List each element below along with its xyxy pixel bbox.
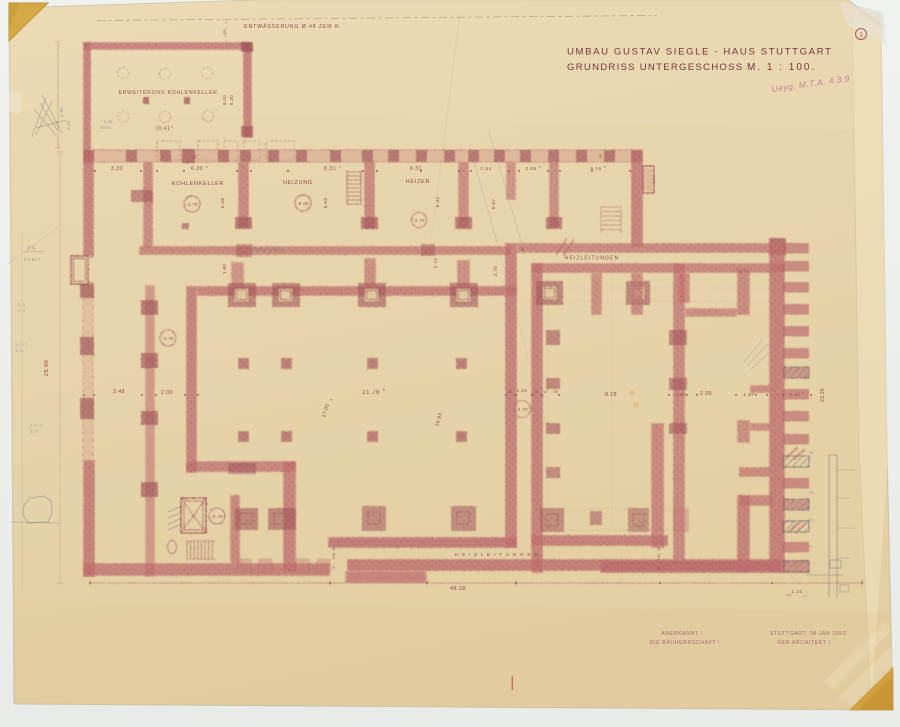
svg-text:UMBAU GUSTAV SIEGLE - HAUS: UMBAU GUSTAV SIEGLE - HAUS STUTTGART <box>567 47 833 58</box>
svg-text:1.00: 1.00 <box>657 554 661 560</box>
svg-text:29.80: 29.80 <box>44 360 50 377</box>
svg-text:2.54: 2.54 <box>480 166 491 172</box>
svg-text:DER ARCHITEKT !: DER ARCHITEKT ! <box>777 640 830 646</box>
svg-text:2.55: 2.55 <box>525 166 536 172</box>
svg-text:1.20: 1.20 <box>517 388 528 393</box>
svg-text:1.16: 1.16 <box>792 589 803 594</box>
svg-text:6.44: 6.44 <box>435 197 441 208</box>
svg-text:-2.70: -2.70 <box>516 407 528 412</box>
svg-text:31 b: 31 b <box>30 429 39 434</box>
svg-text:8: 8 <box>171 125 173 129</box>
svg-text:-2.70: -2.70 <box>211 514 223 519</box>
svg-text:41.5: 41.5 <box>17 302 26 307</box>
svg-text:M. 1 : 100.: M. 1 : 100. <box>747 62 816 73</box>
svg-text:1.80: 1.80 <box>222 264 228 275</box>
svg-text:23.25: 23.25 <box>820 388 826 402</box>
svg-text:70: 70 <box>332 566 336 570</box>
svg-text:17 b: 17 b <box>17 308 26 313</box>
svg-text:10.41: 10.41 <box>155 126 170 132</box>
svg-text:1.97: 1.97 <box>743 392 754 398</box>
svg-text:-2.70: -2.70 <box>413 218 425 223</box>
svg-text:30: 30 <box>332 547 336 551</box>
svg-text:6.30: 6.30 <box>191 166 203 172</box>
svg-text:90: 90 <box>193 155 197 159</box>
svg-text:1.00: 1.00 <box>676 392 686 397</box>
svg-text:5: 5 <box>339 165 341 169</box>
svg-text:ENTWÄSSERUNG Ø 48 ZEM R.: ENTWÄSSERUNG Ø 48 ZEM R. <box>244 23 342 30</box>
svg-text:21.79: 21.79 <box>362 390 380 396</box>
svg-text:90: 90 <box>521 247 525 251</box>
svg-text:5: 5 <box>383 388 385 392</box>
svg-text:KOHLENKELLER: KOHLENKELLER <box>172 181 224 187</box>
svg-text:DIE BAUHERRSCHAFT !: DIE BAUHERRSCHAFT ! <box>650 640 720 646</box>
svg-text:2.39: 2.39 <box>700 391 712 397</box>
svg-text:2.6 x 7: 2.6 x 7 <box>30 423 43 428</box>
svg-text:48.28: 48.28 <box>450 586 466 592</box>
svg-text:8.63: 8.63 <box>323 198 329 209</box>
svg-text:5: 5 <box>539 165 541 169</box>
svg-text:6.30: 6.30 <box>229 95 234 105</box>
svg-text:20: 20 <box>657 566 661 570</box>
svg-text:ERWEITERUNG KOHLENKELLER: ERWEITERUNG KOHLENKELLER <box>118 90 217 96</box>
svg-text:2.07: 2.07 <box>66 120 71 130</box>
svg-text:2.00: 2.00 <box>161 390 173 396</box>
svg-text:+ 2.45: + 2.45 <box>100 119 113 124</box>
svg-text:HEIZLEITUNGEN: HEIZLEITUNGEN <box>565 256 620 262</box>
svg-text:13 b: 13 b <box>15 348 24 353</box>
svg-text:HEIZUNG: HEIZUNG <box>283 180 313 186</box>
svg-text:45.84: 45.84 <box>100 125 112 130</box>
svg-text:6.28: 6.28 <box>220 198 226 209</box>
svg-text:2.74: 2.74 <box>433 258 439 269</box>
svg-text:9 6 54.7: 9 6 54.7 <box>24 257 41 262</box>
svg-text:67: 67 <box>544 390 549 394</box>
svg-text:5: 5 <box>802 391 804 395</box>
svg-text:5.57: 5.57 <box>491 199 497 210</box>
svg-text:2.4 x 7: 2.4 x 7 <box>15 342 28 347</box>
svg-text:3.48: 3.48 <box>113 389 125 395</box>
svg-text:6: 6 <box>206 165 208 169</box>
svg-text:4.90: 4.90 <box>59 107 64 117</box>
svg-text:8.18: 8.18 <box>605 392 617 398</box>
svg-text:30: 30 <box>657 547 661 551</box>
svg-text:-2.70: -2.70 <box>162 336 174 341</box>
svg-text:-1.70: -1.70 <box>186 202 198 207</box>
svg-text:STUTTGART, IM JAN 1953: STUTTGART, IM JAN 1953 <box>770 631 847 637</box>
svg-text:2.70: 2.70 <box>493 266 499 277</box>
svg-text:~55: ~55 <box>222 29 227 37</box>
svg-text:8.31: 8.31 <box>324 166 336 172</box>
svg-text:9.00: 9.00 <box>222 95 227 105</box>
svg-text:5: 5 <box>604 165 606 169</box>
svg-text:1.00: 1.00 <box>332 553 336 559</box>
svg-text:60: 60 <box>534 390 539 394</box>
svg-text:55: 55 <box>554 390 559 394</box>
svg-text:ANERKANNT !: ANERKANNT ! <box>661 631 702 637</box>
svg-text:60: 60 <box>508 390 513 394</box>
svg-text:2.31: 2.31 <box>789 392 800 398</box>
svg-text:HEIZER: HEIZER <box>406 179 431 185</box>
svg-text:-5.00: -5.00 <box>297 201 309 206</box>
svg-text:3.33: 3.33 <box>111 166 123 172</box>
svg-text:H E I Z L E I T U N G E N: H E I Z L E I T U N G E N <box>455 552 539 558</box>
svg-text:GRUNDRISS UNTERGESCHOSS: GRUNDRISS UNTERGESCHOSS <box>567 62 743 73</box>
svg-text:90: 90 <box>599 154 603 158</box>
